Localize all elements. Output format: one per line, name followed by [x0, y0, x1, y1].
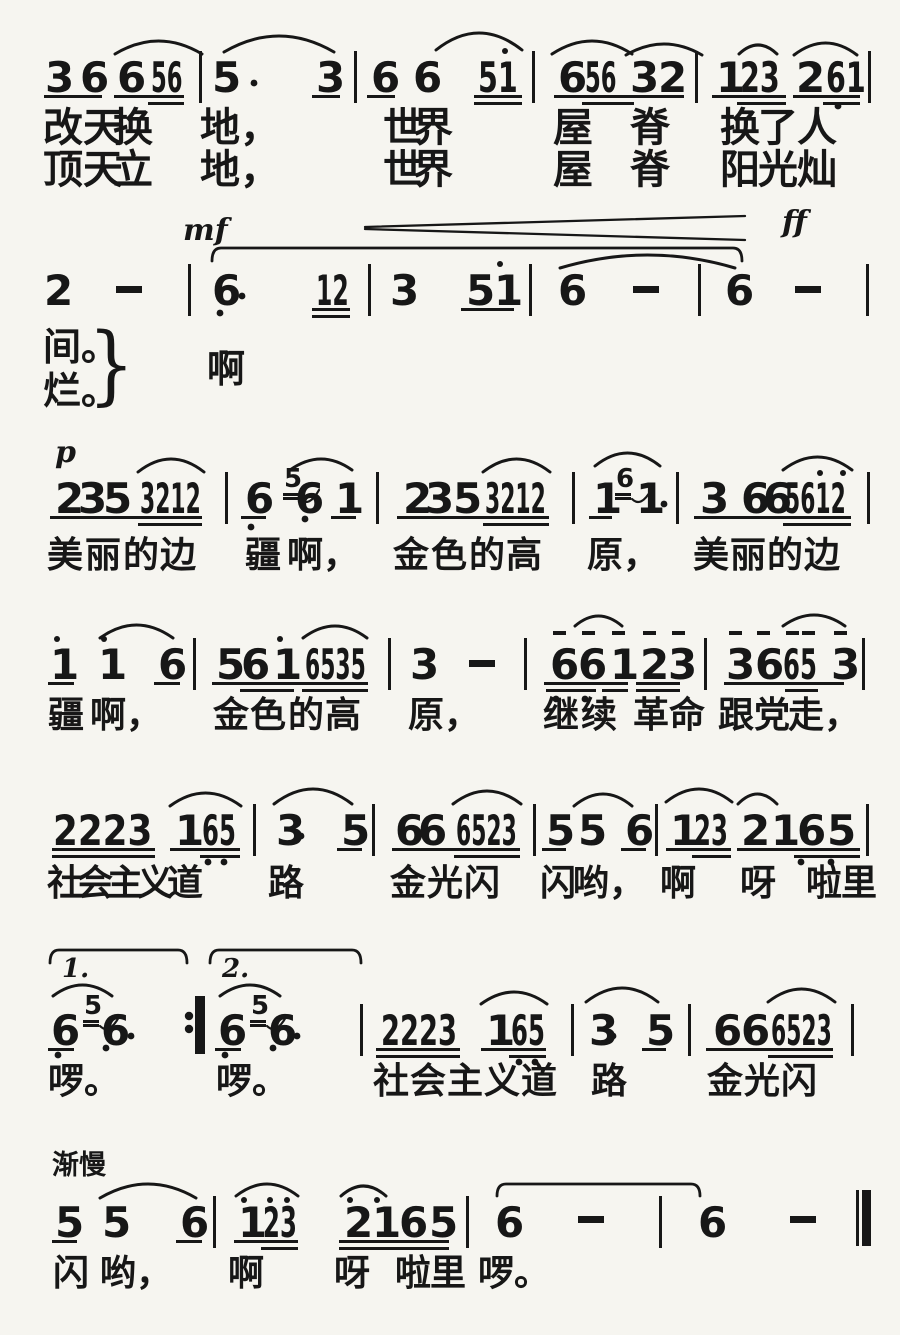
lyric-char: 烂。 — [43, 372, 119, 410]
beam-line — [376, 1055, 460, 1058]
mark — [195, 996, 205, 1054]
beam-line — [52, 848, 155, 851]
beam-line — [692, 855, 731, 858]
beam-line — [241, 516, 266, 519]
slur — [303, 626, 367, 638]
mark — [643, 631, 656, 635]
lyric-char: 间。 — [43, 328, 119, 366]
lyric-char: 的 — [123, 538, 159, 574]
barline — [867, 472, 870, 524]
note-digit: 3 — [276, 810, 305, 852]
lyric-char: 原， — [408, 698, 480, 734]
slur — [666, 789, 732, 802]
beam-line — [44, 95, 102, 98]
hairpin-line — [365, 216, 745, 227]
beam-line — [712, 95, 786, 98]
note-digit: 3 — [700, 478, 729, 520]
note-digit: 6 — [418, 810, 447, 852]
note-digit: 6535 — [305, 644, 366, 686]
lyric-char: 革 — [633, 698, 669, 734]
note-digit: 6 — [158, 644, 187, 686]
note-digit: 1 — [273, 644, 302, 686]
slur — [481, 992, 547, 1004]
barline — [533, 804, 536, 856]
note-digit: 65 — [511, 1010, 545, 1052]
note-digit: 6 — [117, 57, 146, 99]
beam-line — [339, 1240, 449, 1243]
beam-line — [376, 1048, 460, 1051]
note-digit: 6 — [625, 810, 654, 852]
beam-line — [170, 848, 240, 851]
grace-beam — [250, 1020, 266, 1023]
mark — [553, 631, 566, 635]
beam-line — [724, 682, 844, 685]
beam-line — [52, 1240, 77, 1243]
lyric-char: 金 — [390, 866, 426, 902]
barline — [659, 1196, 662, 1248]
barline — [368, 264, 371, 316]
note-digit: 2 — [344, 1202, 373, 1244]
note-digit: 1 — [636, 478, 665, 520]
lyric-char: 美 — [693, 538, 729, 574]
beam-line — [793, 95, 860, 98]
lyric-char: 原， — [587, 538, 659, 574]
barline — [388, 638, 391, 690]
note-digit: 6 — [413, 57, 442, 99]
barline — [571, 1004, 574, 1056]
beam-line — [312, 95, 340, 98]
beam-line — [636, 689, 680, 692]
beam-line — [261, 1247, 298, 1250]
beam-line — [212, 682, 368, 685]
lyric-char: 路 — [591, 1064, 627, 1100]
lyric-char: 继 — [543, 698, 579, 734]
dash-rest — [116, 286, 142, 293]
lyric-char: 路 — [268, 866, 304, 902]
barline — [253, 804, 256, 856]
lyric-char: 金 — [707, 1064, 743, 1100]
beam-line — [483, 523, 549, 526]
lyric-char: 美 — [47, 538, 83, 574]
note-digit: 3 — [45, 57, 74, 99]
lyric-char: 会 — [410, 1064, 446, 1100]
note-digit: 6 — [371, 57, 400, 99]
slur — [783, 615, 845, 626]
lyric-char: 啊， — [287, 538, 359, 574]
note-digit: 12 — [316, 270, 349, 312]
barline — [188, 264, 191, 316]
octave-dot — [185, 1012, 193, 1020]
mark — [757, 631, 770, 635]
beam-line — [546, 689, 596, 692]
score-sheet: 3665653665165632123261改天换地，世界屋脊换了人顶天立地，世… — [0, 0, 900, 1335]
beam-line — [50, 516, 202, 519]
lyric-char: 的 — [288, 698, 324, 734]
beam-line — [554, 95, 634, 98]
slur — [236, 1184, 298, 1196]
slur — [783, 457, 852, 470]
slur — [100, 1184, 196, 1198]
mark — [729, 631, 742, 635]
lyric-char: 丽 — [730, 538, 766, 574]
barline — [199, 51, 202, 103]
beam-line — [481, 1048, 546, 1051]
lyric-char: 道 — [167, 866, 203, 902]
note-digit: 1 — [175, 810, 204, 852]
lyric-char: 走， — [788, 698, 860, 734]
beam-line — [602, 689, 628, 692]
lyric-char: 边 — [160, 538, 196, 574]
barline — [225, 472, 228, 524]
note-digit: 56 — [151, 57, 183, 99]
slur — [220, 985, 280, 996]
note-digit: 51 — [478, 57, 518, 99]
note-digit: 6 — [268, 1010, 297, 1052]
octave-dot — [221, 859, 228, 866]
lyric-char: 闪 — [540, 866, 576, 902]
note-digit: 2 — [44, 270, 73, 312]
lyric-char: 啊， — [90, 698, 162, 734]
grace-beam — [83, 1024, 99, 1027]
slur — [575, 616, 622, 626]
lyric-char: 啰。 — [48, 1064, 120, 1100]
beam-line — [642, 1048, 666, 1051]
slur — [138, 459, 204, 472]
slur — [341, 1186, 386, 1196]
note-digit: 65 — [202, 810, 236, 852]
note-digit: 5 — [55, 1202, 84, 1244]
note-digit: 6 — [80, 57, 109, 99]
lyric-char: 换 — [720, 108, 760, 148]
note-digit: 6 — [755, 644, 784, 686]
beam-line — [626, 95, 684, 98]
beam-line — [200, 855, 240, 858]
beam-line — [397, 516, 549, 519]
note-digit: 23 — [694, 810, 728, 852]
phrase-bracket — [212, 248, 742, 261]
beam-line — [52, 855, 155, 858]
note-digit: 6 — [245, 478, 274, 520]
octave-dot — [798, 859, 805, 866]
barline — [360, 1004, 363, 1056]
lyric-char: 阳 — [720, 150, 760, 190]
note-digit: 23 — [740, 57, 780, 99]
lyric-char: 灿 — [797, 150, 837, 190]
slur — [574, 794, 632, 806]
volta-label: 2. — [222, 956, 249, 982]
note-digit: 3212 — [140, 478, 201, 520]
beam-line — [768, 1055, 833, 1058]
beam-line — [783, 523, 851, 526]
barline — [572, 472, 575, 524]
note-digit: 3 — [589, 1010, 618, 1052]
lyric-char: 金 — [213, 698, 249, 734]
beam-line — [176, 1240, 202, 1243]
lyric-char: 主 — [447, 1064, 483, 1100]
beam-line — [234, 1240, 298, 1243]
note-digit: 2223 — [53, 810, 152, 852]
barline — [524, 638, 527, 690]
note-digit: 3 — [390, 270, 419, 312]
lyric-char: 跟 — [718, 698, 754, 734]
note-digit: 5 — [578, 810, 607, 852]
beam-line — [48, 1048, 74, 1051]
lyric-char: 金 — [393, 538, 429, 574]
lyric-char: 啰。 — [478, 1256, 550, 1292]
note-digit: 6 — [218, 1010, 247, 1052]
note-digit: 6 — [180, 1202, 209, 1244]
note-digit: 6 — [101, 1010, 130, 1052]
slur — [224, 36, 334, 52]
note-digit: 1 — [50, 644, 79, 686]
lyric-char: 换 — [113, 108, 153, 148]
beam-line — [785, 689, 818, 692]
note-digit: 3 — [630, 57, 659, 99]
beam-line — [621, 848, 646, 851]
beam-line — [114, 95, 184, 98]
lyric-char: 地， — [200, 108, 280, 148]
beam-line — [312, 315, 350, 318]
beam-line — [666, 848, 731, 851]
beam-line — [337, 848, 362, 851]
lyric-char: 边 — [804, 538, 840, 574]
barline — [676, 472, 679, 524]
beam-line — [542, 848, 566, 851]
lyric-char: 界 — [413, 108, 453, 148]
lyric-char: 呀 — [334, 1256, 370, 1292]
note-digit: 2 — [658, 57, 687, 99]
lyric-char: 里 — [841, 866, 877, 902]
grace-note-digit: 5 — [84, 993, 102, 1019]
barline — [655, 804, 658, 856]
lyric-char: 党 — [754, 698, 790, 734]
beam-line — [544, 682, 628, 685]
mark — [672, 631, 685, 635]
slur — [274, 789, 352, 804]
note-digit: 6 — [713, 1010, 742, 1052]
volta-label: 1. — [62, 956, 89, 982]
lyric-char: 啊 — [228, 1256, 264, 1292]
grace-note-digit: 5 — [284, 466, 302, 492]
slur — [738, 794, 777, 804]
mark — [786, 631, 799, 635]
lyric-char: 色 — [250, 698, 286, 734]
grace-note-digit: 5 — [251, 993, 269, 1019]
note-digit: 5 — [646, 1010, 675, 1052]
dash-rest — [633, 286, 659, 293]
beam-line — [302, 689, 368, 692]
note-digit: 3 — [425, 478, 454, 520]
lyric-char: 命 — [669, 698, 705, 734]
beam-line — [48, 682, 74, 685]
lyric-char: 哟， — [573, 866, 645, 902]
beam-line — [454, 855, 520, 858]
note-digit: 61 — [826, 57, 866, 99]
barline — [862, 638, 865, 690]
note-digit: 5 — [429, 1202, 458, 1244]
lyric-char: 疆 — [48, 698, 84, 734]
note-digit: 3 — [726, 644, 755, 686]
lyric-char: 光 — [744, 1064, 780, 1100]
note-digit: 23 — [263, 1202, 297, 1244]
lyric-char: 啊 — [660, 866, 696, 902]
note-digit: 5 — [546, 810, 575, 852]
beam-line — [589, 516, 612, 519]
grace-beam — [615, 493, 631, 496]
note-digit: 6 — [212, 270, 241, 312]
note-digit: 2 — [741, 810, 770, 852]
barline — [866, 804, 869, 856]
note-digit: 6 — [558, 57, 587, 99]
beam-line — [392, 848, 520, 851]
slur — [586, 988, 658, 1002]
lyric-char: 呀 — [740, 866, 776, 902]
note-digit: 5612 — [785, 478, 846, 520]
note-digit: 5 — [827, 810, 856, 852]
beam-line — [737, 848, 860, 851]
lyric-char: 改 — [43, 108, 83, 148]
octave-dot — [251, 80, 258, 87]
lyric-char: 啦 — [395, 1256, 431, 1292]
lyric-char: 高 — [325, 698, 361, 734]
beam-line — [331, 516, 356, 519]
note-digit: 5 — [453, 478, 482, 520]
dash-rest — [795, 286, 821, 293]
lyric-char: 脊 — [630, 150, 670, 190]
mark — [612, 631, 625, 635]
lyric-char: 疆 — [245, 538, 281, 574]
lyric-char: 界 — [413, 150, 453, 190]
beam-line — [367, 95, 395, 98]
note-digit: 5 — [103, 478, 132, 520]
barline — [851, 1004, 854, 1056]
octave-dot — [248, 524, 255, 531]
lyric-char: 的 — [767, 538, 803, 574]
dynamic-marking: mf — [183, 216, 228, 246]
lyric-char: 啰。 — [216, 1064, 288, 1100]
slur — [170, 793, 241, 806]
beam-line — [474, 102, 522, 105]
note-digit: 6 — [741, 1010, 770, 1052]
barline — [372, 804, 375, 856]
lyric-char: 屋 — [553, 108, 593, 148]
lyric-char: 道 — [521, 1064, 557, 1100]
mark — [862, 1190, 871, 1246]
barline — [466, 1196, 469, 1248]
note-digit: 3 — [410, 644, 439, 686]
dash-rest — [469, 660, 495, 667]
slur — [768, 989, 835, 1002]
mark — [802, 631, 815, 635]
lyric-char: 屋 — [553, 150, 593, 190]
beam-line — [339, 1247, 449, 1250]
hairpin-line — [365, 229, 745, 240]
note-digit: 2 — [796, 57, 825, 99]
note-digit: 6 — [558, 270, 587, 312]
note-digit: 6 — [797, 810, 826, 852]
mark — [582, 631, 595, 635]
beam-line — [148, 102, 184, 105]
note-digit: 56 — [585, 57, 617, 99]
beam-line — [794, 855, 860, 858]
grace-beam — [615, 497, 631, 500]
barline — [866, 264, 869, 316]
note-digit: 5 — [102, 1202, 131, 1244]
note-digit: 1 — [610, 644, 639, 686]
slur — [453, 791, 521, 804]
slur — [436, 33, 522, 50]
note-digit: 6 — [550, 644, 579, 686]
lyric-char: 的 — [469, 538, 505, 574]
grace-beam — [83, 1020, 99, 1023]
note-digit: 65 — [783, 644, 817, 686]
barline — [868, 51, 871, 103]
note-digit: 6 — [578, 644, 607, 686]
slur — [483, 459, 550, 472]
slur — [100, 625, 173, 638]
lyric-char: 丽 — [85, 538, 121, 574]
lyric-char: 啦 — [806, 866, 842, 902]
note-digit: 6 — [698, 1202, 727, 1244]
lyric-char: 了 — [758, 108, 798, 148]
slur — [53, 985, 112, 996]
beam-line — [240, 689, 294, 692]
beam-line — [312, 308, 350, 311]
note-digit: 2223 — [381, 1010, 457, 1052]
barline — [532, 51, 535, 103]
grace-beam — [283, 497, 299, 500]
barline — [213, 1196, 216, 1248]
grace-beam — [250, 1024, 266, 1027]
lyric-char: 立 — [113, 150, 153, 190]
dynamic-marking: p — [55, 438, 76, 468]
beam-line — [138, 523, 202, 526]
octave-dot — [205, 859, 212, 866]
note-digit: 6 — [241, 644, 270, 686]
lyric-char: 里 — [430, 1256, 466, 1292]
lyric-char: 人 — [797, 108, 837, 148]
lyric-char: 闪 — [53, 1256, 89, 1292]
mark — [856, 1190, 859, 1246]
note-digit: 5 — [212, 57, 241, 99]
lyric-char: 脊 — [630, 108, 670, 148]
dynamic-marking: ff — [782, 208, 807, 238]
note-digit: 2 — [640, 644, 669, 686]
note-digit: 3 — [316, 57, 345, 99]
note-digit: 1 — [98, 644, 127, 686]
lyric-char: 闪 — [464, 866, 500, 902]
note-digit: 6523 — [456, 810, 517, 852]
lyric-char: 义 — [484, 1064, 520, 1100]
beam-line — [474, 95, 522, 98]
note-digit: 1 — [771, 810, 800, 852]
mark — [834, 631, 847, 635]
barline — [698, 264, 701, 316]
grace-beam — [283, 493, 299, 496]
beam-line — [215, 1048, 241, 1051]
beam-line — [461, 308, 514, 311]
tempo-marking: 渐慢 — [52, 1152, 106, 1179]
note-digit: 6 — [725, 270, 754, 312]
lyric-char: 啊 — [207, 350, 245, 388]
note-digit: 3 — [668, 644, 697, 686]
barline — [354, 51, 357, 103]
octave-dot — [185, 1025, 193, 1033]
barline — [529, 264, 532, 316]
lyric-char: 高 — [506, 538, 542, 574]
note-digit: 6 — [51, 1010, 80, 1052]
note-digit: 6 — [399, 1202, 428, 1244]
